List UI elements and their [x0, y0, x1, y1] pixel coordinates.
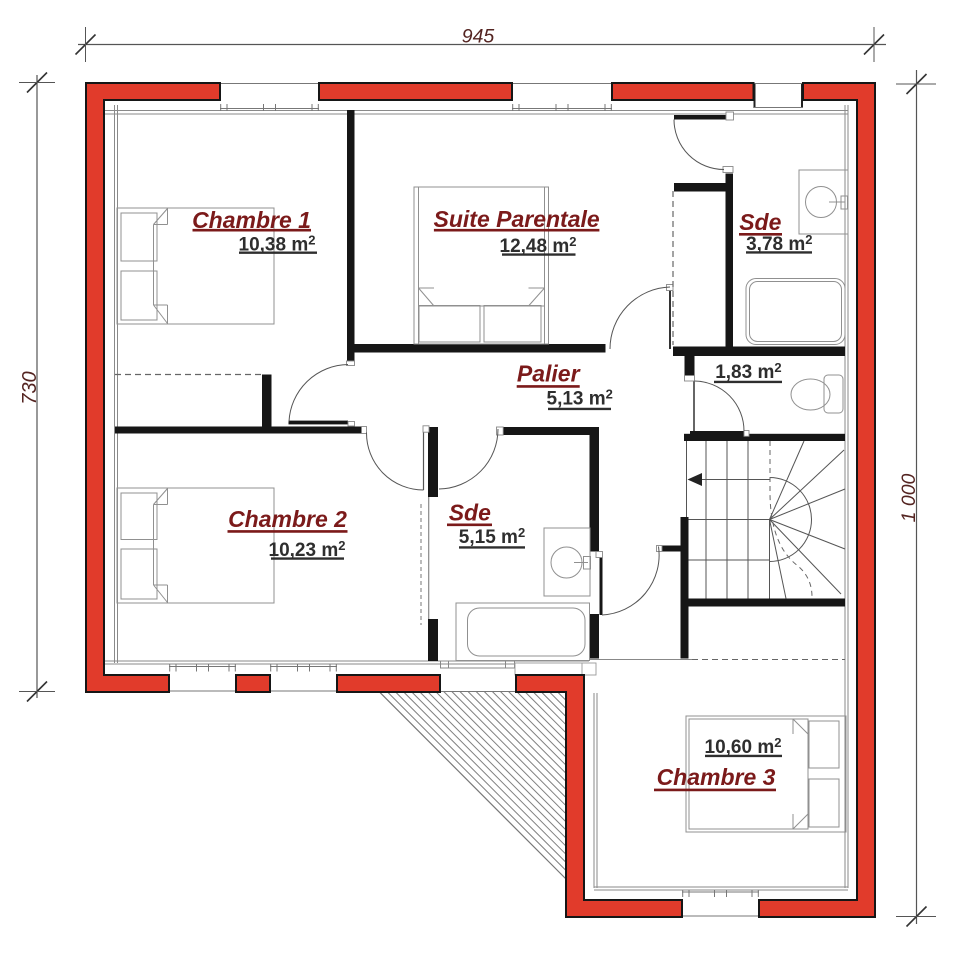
- svg-text:945: 945: [462, 26, 495, 48]
- svg-text:5,13 m2: 5,13 m2: [547, 387, 613, 410]
- svg-text:1,83 m2: 1,83 m2: [715, 360, 781, 383]
- svg-text:10,60 m2: 10,60 m2: [705, 735, 782, 758]
- svg-text:Palier: Palier: [517, 361, 581, 387]
- svg-text:Sde: Sde: [449, 500, 491, 526]
- svg-text:1 000: 1 000: [898, 473, 920, 522]
- svg-text:Suite Parentale: Suite Parentale: [434, 206, 600, 232]
- svg-text:Chambre 2: Chambre 2: [228, 506, 347, 532]
- svg-text:730: 730: [19, 371, 41, 404]
- svg-text:Sde: Sde: [739, 209, 781, 235]
- svg-text:Chambre 3: Chambre 3: [657, 764, 776, 790]
- svg-text:5,15 m2: 5,15 m2: [459, 525, 525, 548]
